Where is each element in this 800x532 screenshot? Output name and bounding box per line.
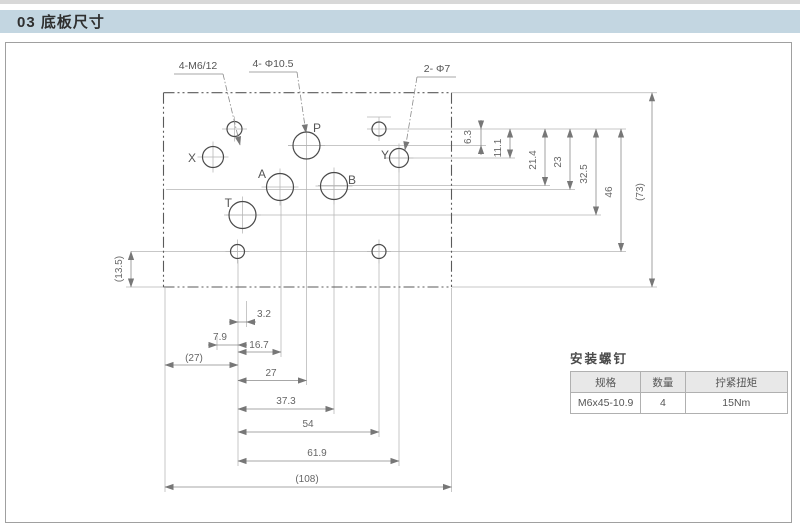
- header-torque: 拧紧扭矩: [685, 372, 787, 393]
- port-label-t: T: [225, 196, 233, 210]
- dim-23: 23: [553, 156, 564, 168]
- dim-27-ref: (27): [185, 353, 203, 364]
- leader-lines: [174, 72, 456, 150]
- port-label-x: X: [188, 151, 196, 165]
- port-label-a: A: [258, 167, 266, 181]
- dimension-drawing: 4-M6/12 4- Φ10.5 2- Φ7 X P Y A B T 3.2 7…: [0, 0, 800, 532]
- dim-73-ref: (73): [635, 183, 646, 201]
- dim-6-3: 6.3: [463, 130, 474, 144]
- port-holes: [203, 122, 409, 259]
- header-spec: 规格: [571, 372, 641, 393]
- dim-46: 46: [604, 186, 615, 198]
- dim-27: 27: [265, 368, 277, 379]
- port-label-y: Y: [381, 148, 389, 162]
- dim-21-4: 21.4: [528, 150, 539, 170]
- dim-7-9: 7.9: [213, 332, 227, 343]
- dim-32-5: 32.5: [579, 164, 590, 184]
- dim-61-9: 61.9: [307, 448, 327, 459]
- callout-d7: 2- Φ7: [424, 63, 451, 75]
- dim-16-7: 16.7: [249, 340, 269, 351]
- dim-11-1: 11.1: [493, 138, 504, 157]
- dim-54: 54: [302, 419, 314, 430]
- callout-d105: 4- Φ10.5: [252, 58, 293, 70]
- screw-table-title: 安装螺钉: [570, 348, 628, 367]
- dim-13-5-ref: (13.5): [114, 256, 125, 282]
- port-label-p: P: [313, 121, 321, 135]
- mounting-screw-table: 规格 数量 拧紧扭矩 M6x45-10.9 4 15Nm: [570, 371, 788, 414]
- dim-3-2: 3.2: [257, 309, 271, 320]
- dim-108-ref: (108): [295, 474, 318, 485]
- port-label-b: B: [348, 173, 356, 187]
- screw-table-header-row: 规格 数量 拧紧扭矩: [571, 372, 788, 393]
- header-qty: 数量: [641, 372, 685, 393]
- callout-m6: 4-M6/12: [179, 60, 218, 72]
- cell-torque: 15Nm: [685, 393, 787, 414]
- screw-table-data-row: M6x45-10.9 4 15Nm: [571, 393, 788, 414]
- dim-37-3: 37.3: [276, 396, 296, 407]
- cell-qty: 4: [641, 393, 685, 414]
- cell-spec: M6x45-10.9: [571, 393, 641, 414]
